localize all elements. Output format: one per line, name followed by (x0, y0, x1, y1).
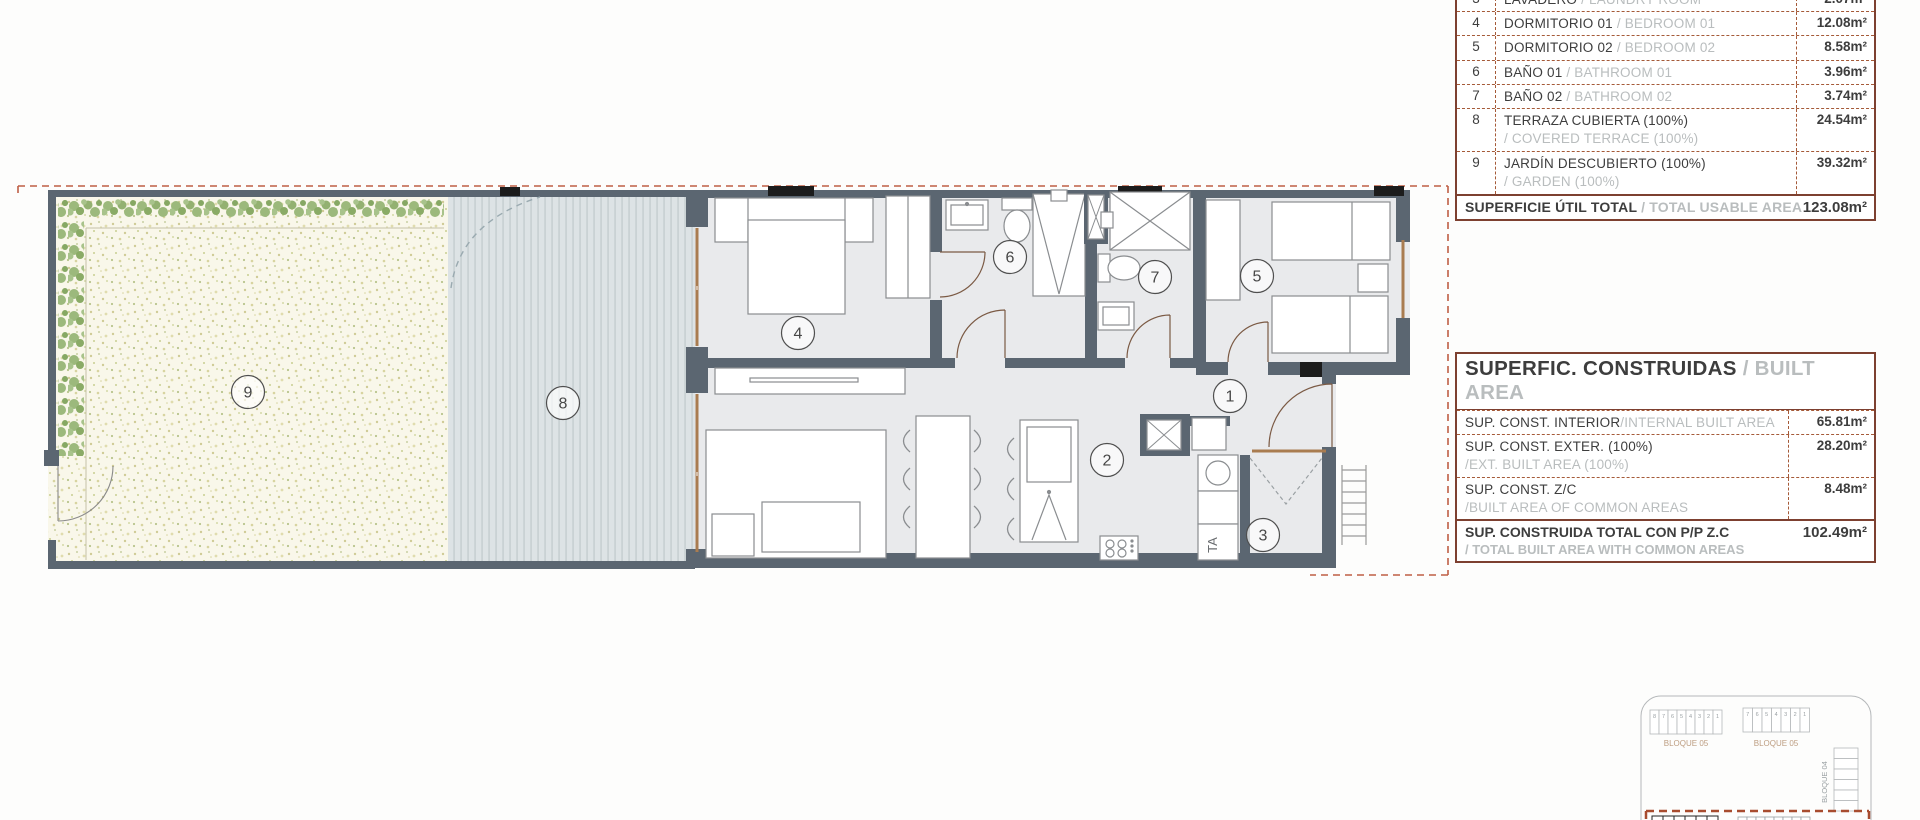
svg-text:2: 2 (1794, 712, 1797, 718)
room-circle-7: 7 (1139, 261, 1172, 294)
svg-text:3: 3 (1698, 714, 1701, 720)
washer-label: TA (1205, 537, 1220, 553)
dining-table (916, 416, 970, 558)
room-name-en: / LAUNDRY ROOM (1581, 0, 1701, 7)
row-value: 8.58m² (1796, 36, 1874, 59)
room-circle-6: 6 (994, 241, 1027, 274)
svg-text:1: 1 (1226, 389, 1235, 406)
svg-text:8: 8 (1653, 714, 1656, 720)
table-row: 5 DORMITORIO 02 / BEDROOM 02 8.58m² (1457, 35, 1874, 59)
room-name-es: DORMITORIO 02 (1504, 40, 1613, 55)
room-circle-8: 8 (547, 387, 580, 420)
svg-text:4: 4 (1775, 712, 1778, 718)
room-circle-3: 3 (1247, 519, 1280, 552)
svg-text:1: 1 (1716, 714, 1719, 720)
room-name-en: / GARDEN (100%) (1504, 173, 1792, 191)
room-name-es: BAÑO 01 (1504, 65, 1562, 80)
table-row: SUP. CONST. INTERIOR/INTERNAL BUILT AREA… (1457, 410, 1874, 434)
svg-text:7: 7 (1662, 714, 1665, 720)
usable-area-table: 3 LAVADERO / LAUNDRY ROOM 2.07m² 4 DORMI… (1455, 0, 1876, 221)
row-value: 65.81m² (1788, 411, 1874, 434)
row-value: 3.96m² (1796, 61, 1874, 84)
room-circle-9: 9 (232, 376, 265, 409)
room-name-es: DORMITORIO 01 (1504, 16, 1613, 31)
svg-text:5: 5 (1680, 714, 1683, 720)
built-area-title: SUPERFIC. CONSTRUIDAS / BUILT AREA (1457, 354, 1874, 410)
built-area-table: SUPERFIC. CONSTRUIDAS / BUILT AREA SUP. … (1455, 352, 1876, 563)
table-row: 9 JARDÍN DESCUBIERTO (100%) / GARDEN (10… (1457, 151, 1874, 193)
row-value: 3.74m² (1796, 85, 1874, 108)
room-circle-4: 4 (782, 317, 815, 350)
row-name: BAÑO 01 / BATHROOM 01 (1496, 61, 1796, 84)
svg-text:7: 7 (1151, 270, 1160, 287)
row-number: 4 (1457, 12, 1496, 35)
row-number: 9 (1457, 152, 1496, 193)
room-name-en: / BATHROOM 01 (1566, 65, 1672, 80)
block-vertical-cells (1834, 748, 1858, 811)
row-name: LAVADERO / LAUNDRY ROOM (1496, 0, 1796, 11)
svg-text:6: 6 (1671, 714, 1674, 720)
room-circle-1: 1 (1214, 380, 1247, 413)
svg-text:9: 9 (244, 385, 253, 402)
row-number: 6 (1457, 61, 1496, 84)
total-value: 102.49m² (1803, 524, 1867, 541)
room-circle-5: 5 (1241, 260, 1274, 293)
row-name: TERRAZA CUBIERTA (100%) / COVERED TERRAC… (1496, 109, 1796, 150)
stairs (1342, 465, 1366, 545)
key-plan: 87 65 43 21 BLOQUE 05 76 54 32 1 BLOQUE … (1630, 688, 1920, 820)
row-value: 28.20m² (1788, 435, 1874, 476)
table-row: SUP. CONST. EXTER. (100%)/EXT. BUILT ARE… (1457, 434, 1874, 476)
bottom-cells (1652, 816, 1810, 820)
row-value: 2.07m² (1796, 0, 1874, 11)
room-name-en: / COVERED TERRACE (100%) (1504, 130, 1792, 148)
svg-text:6: 6 (1006, 250, 1015, 267)
row-number: 3 (1457, 0, 1496, 11)
row-name: BAÑO 02 / BATHROOM 02 (1496, 85, 1796, 108)
svg-text:3: 3 (1259, 528, 1268, 545)
room-name-es: LAVADERO (1504, 0, 1577, 7)
table-row: 8 TERRAZA CUBIERTA (100%) / COVERED TERR… (1457, 108, 1874, 151)
usable-area-total-row: SUPERFICIE ÚTIL TOTAL / TOTAL USABLE ARE… (1457, 194, 1874, 219)
row-label: SUP. CONST. EXTER. (100%)/EXT. BUILT ARE… (1457, 435, 1788, 476)
svg-text:4: 4 (1689, 714, 1692, 720)
table-row: 3 LAVADERO / LAUNDRY ROOM 2.07m² (1457, 0, 1874, 11)
row-number: 7 (1457, 85, 1496, 108)
total-label-en: / TOTAL BUILT AREA WITH COMMON AREAS (1465, 542, 1867, 557)
floorplan-sheet: TA 1 2 3 4 5 6 7 8 9 3 LAVADERO / LAUNDR… (0, 0, 1920, 820)
title-es: SUPERFIC. CONSTRUIDAS (1465, 357, 1737, 380)
svg-text:4: 4 (794, 326, 803, 343)
floor-plan-drawing: TA 1 2 3 4 5 6 7 8 9 (0, 150, 1460, 590)
svg-text:2: 2 (1707, 714, 1710, 720)
room-circle-2: 2 (1091, 444, 1124, 477)
block-left-label: BLOQUE 05 (1664, 739, 1709, 748)
hedge-left (58, 198, 84, 456)
row-label: SUP. CONST. Z/C/BUILT AREA OF COMMON ARE… (1457, 478, 1788, 519)
room-name-es: BAÑO 02 (1504, 89, 1562, 104)
svg-text:1: 1 (1803, 712, 1806, 718)
row-name: DORMITORIO 01 / BEDROOM 01 (1496, 12, 1796, 35)
hedge-top (58, 198, 444, 218)
room-name-en: / BEDROOM 02 (1617, 40, 1715, 55)
room-name-es: TERRAZA CUBIERTA (100%) (1504, 113, 1688, 128)
row-number: 5 (1457, 36, 1496, 59)
block-right-label: BLOQUE 05 (1754, 739, 1799, 748)
wardrobe-bedroom-02 (1206, 200, 1240, 300)
row-name: DORMITORIO 02 / BEDROOM 02 (1496, 36, 1796, 59)
block-left-cells (1650, 710, 1722, 734)
row-value: 24.54m² (1796, 109, 1874, 151)
room-name-es: JARDÍN DESCUBIERTO (100%) (1504, 156, 1706, 171)
table-row: 4 DORMITORIO 01 / BEDROOM 01 12.08m² (1457, 11, 1874, 35)
terrace-area (448, 190, 695, 569)
built-area-total-row: SUP. CONSTRUIDA TOTAL CON P/P Z.C / TOTA… (1457, 519, 1874, 561)
block-vertical-label: BLOQUE 04 (1820, 761, 1829, 803)
total-value: 123.08m² (1803, 199, 1867, 216)
svg-text:5: 5 (1253, 269, 1262, 286)
svg-text:2: 2 (1103, 453, 1112, 470)
row-label: SUP. CONST. INTERIOR/INTERNAL BUILT AREA (1457, 411, 1788, 434)
room-name-en: / BATHROOM 02 (1566, 89, 1672, 104)
svg-text:5: 5 (1765, 712, 1768, 718)
row-number: 8 (1457, 109, 1496, 151)
row-value: 8.48m² (1788, 478, 1874, 519)
row-value: 39.32m² (1796, 152, 1874, 193)
svg-text:6: 6 (1756, 712, 1759, 718)
row-name: JARDÍN DESCUBIERTO (100%) / GARDEN (100%… (1496, 152, 1796, 193)
svg-text:7: 7 (1746, 712, 1749, 718)
table-row: SUP. CONST. Z/C/BUILT AREA OF COMMON ARE… (1457, 477, 1874, 519)
table-row: 6 BAÑO 01 / BATHROOM 01 3.96m² (1457, 60, 1874, 84)
total-label: SUPERFICIE ÚTIL TOTAL / TOTAL USABLE ARE… (1465, 199, 1803, 215)
table-row: 7 BAÑO 02 / BATHROOM 02 3.74m² (1457, 84, 1874, 108)
svg-text:8: 8 (559, 396, 568, 413)
row-value: 12.08m² (1796, 12, 1874, 35)
svg-text:3: 3 (1784, 712, 1787, 718)
total-label: SUP. CONSTRUIDA TOTAL CON P/P Z.C (1465, 524, 1729, 540)
room-name-en: / BEDROOM 01 (1617, 16, 1715, 31)
